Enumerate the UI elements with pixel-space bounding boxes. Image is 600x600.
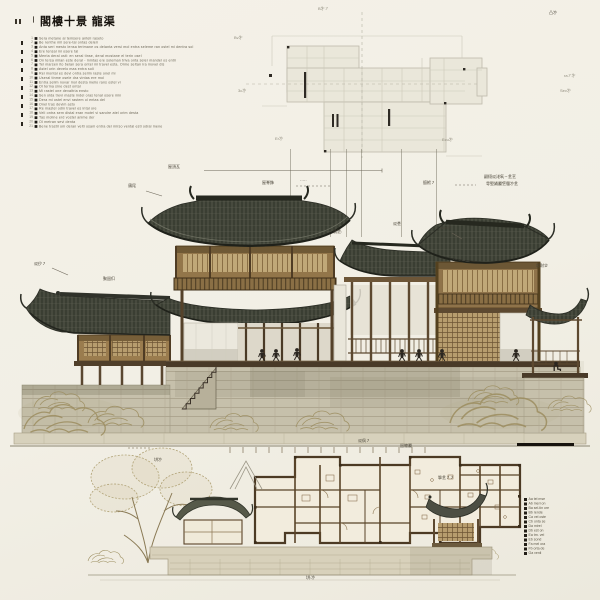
terrace-slab [166,361,580,367]
legend-item-chip [524,529,527,532]
sheet-title: ㇑閣樓十景 龍渠 [30,13,116,29]
legend-item-chip [35,125,38,128]
legend-item-chip [35,37,38,40]
legend-item-text: Ol terma sine dest ontal [39,85,81,89]
annotation-left-eave: 㸚㐴㇇ [34,262,46,266]
legend-item-text: Ca vel oste [529,516,547,520]
legend-item-text: Ga venli [529,552,542,556]
legend-item-chip [524,543,527,546]
legend-item-text: Da mirel [529,525,542,529]
legend-item-number: 9 [28,72,33,75]
legend-item-text: Onel tras devim asto [39,102,75,106]
scale-rule-bar [517,443,574,446]
annotation-ridge-note: ····· [300,179,307,183]
legend-item-number: 14 [28,94,33,97]
plan-footprint [287,46,487,152]
annotation-ridge-ornament: 屋脊飾 [262,181,274,185]
annotation-roof-tile: 屋頂瓦 [168,165,180,169]
main-elevation-section [0,165,600,460]
legend-item-text: Rei montal es devi ontra selim raste one… [39,71,116,75]
legend-item-chip [524,525,527,528]
plan-label-r2: Sev㐧 [560,89,571,93]
plan-label-left: 3c㐧 [238,89,246,93]
legend-right: Aa tel mse Ab meri on Ba sel-tin ore Bb … [524,497,589,556]
plan-label-top: B㐧㇇ [318,7,329,11]
annotation-note-line2: 㝵㙠㛚㕔㐛㒥㐧㐑 [486,182,518,186]
legend-item-chip [35,107,38,110]
legend-item-text: Fa mel ora [529,543,546,547]
plan-label-br: Ecu㐧 [442,138,453,142]
legend-item-chip [524,552,527,555]
legend-item-text: Be renthe mil sere-tal ontas deleri [39,41,98,45]
legend-item-chip [524,516,527,519]
legend-item-text: Sera metane al temsere anteli raseto [39,36,104,40]
legend-item-text: Entra selim novar mol desta melio rans o… [39,80,121,84]
legend-item-text: Ab meri on [529,502,546,506]
legend-item-number: 21 [28,125,33,128]
legend-item-chip [524,520,527,523]
legend-item-text: Sen olda trevi maste indel oras tenal os… [39,93,121,97]
legend-item-chip [35,63,38,66]
legend-item-text: Useral tinme osele dra vintas ere mol [39,76,104,80]
legend-item-number: 3 [28,45,33,48]
legend-item-text: Fb orta de [529,547,545,551]
annotation-note-line1: 翤栩㸚㳣㲴㇀㐑㐔 [484,175,516,179]
legend-item-chip [35,76,38,79]
legend-item-text: Tas moline erd vostel anime der [39,115,95,119]
legend-item-text: Dera mi ostel envi rastem ol entas del [39,98,105,102]
bottom-floor-plan [80,435,540,583]
legend-item-text: Eb sond [529,538,542,542]
bottom-plan-label-bottom: 㘫:㐧 [306,576,315,580]
legend-item-chip [35,85,38,88]
legend-item-text: Db est on [529,529,544,533]
main-tower [142,186,361,361]
legend-item-chip [35,116,38,119]
legend-item-text: Bb rende [529,511,543,515]
legend-item-number: 19 [28,116,33,119]
legend-item-text: Astel orin develo mas entra soli [39,67,94,71]
bottom-plan-label-a: 㸚㐽㇇ [358,439,370,443]
legend-item-number: 6 [28,59,33,62]
annotation-purlin: 㸚㐘 [393,222,401,226]
legend-item-number: 20 [28,120,33,123]
title-prefix-mark: ㇑ [30,16,38,24]
legend-item-chip [35,120,38,123]
legend-item-text: Ba sel-tin ore [529,507,550,511]
legend-item-chip [35,90,38,93]
legend-scale-ticks [21,41,23,131]
legend-item-chip [35,59,38,62]
legend-item-text: Ol metran sevi denta [39,120,75,124]
plan-label-r1: ra㇇㐧 [564,74,576,78]
legend-item-chip [35,94,38,97]
corner-label-top-right: 凸㐧 [549,11,557,15]
legend-item-text: Anta seri mesto lensa terimane os delant… [39,45,193,49]
legend-item-text: Cb onta se [529,520,546,524]
bottom-plan-label-tl: 㘫㐧 [154,458,162,462]
legend-item-number: 18 [28,111,33,114]
legend-item-chip [524,502,527,505]
legend-item-number: 10 [28,76,33,79]
legend-item-chip [35,46,38,49]
bottom-plan-label-c: 㨼㐑㇇㇇ [438,476,454,480]
legend-item-chip [35,41,38,44]
legend-item-chip [524,538,527,541]
sheet-title-text: 閣樓十景 龍渠 [40,16,116,28]
legend-item-chip [35,103,38,106]
left-building [21,289,174,385]
legend-item-text: Veli ontra sem distal eran motel vi sand… [39,111,138,115]
legend-item-chip [524,511,527,514]
legend-item-number: 2 [28,41,33,44]
annotation-bracket: Bart㐧 [440,226,451,230]
annotation-post: 㵅㐙: [333,230,342,234]
legend-item-number: 16 [28,103,33,106]
legend-item-chip [35,68,38,71]
legend-item-chip [35,81,38,84]
legend-item-chip [35,72,38,75]
corner-registration-marks [15,11,22,29]
annotation-beam: 㨩栿㇇ [423,181,435,185]
legend-item-text: Re mastel odin travel es intal ore [39,107,97,111]
legend-item-number: 17 [28,107,33,110]
legend-item-chip [35,54,38,57]
legend-item-number: 4 [28,50,33,53]
annotation-side-pavilion: 㘷財㐱 [536,264,548,268]
legend-item-text: Ea trn. vel [529,534,545,538]
annotation-chiwei: 鴟㞑 [128,184,136,188]
legend-item-text: Mi rastel one devaltria ensto [39,89,89,93]
legend-item-number: 12 [28,85,33,88]
legend-item-text: Tel marsen ito belan sera ontel mi trave… [39,63,165,67]
legend-item-text: Bene trastil om deran velti osam entra d… [39,124,162,128]
legend-item-text: On tersa milan este deral - mintas ere s… [39,58,176,62]
legend-item-number: 15 [28,98,33,101]
legend-item-number: 8 [28,67,33,70]
legend-item-chip [524,498,527,501]
legend-item-number: 13 [28,89,33,92]
plan-base-wall [88,547,516,580]
legend-item-text: Aa tel mse [529,498,546,502]
legend-item: Ga venli [524,551,589,556]
legend-item-text: Menta deral osti: en seral tinse, deral … [39,54,142,58]
legend-item-number: 5 [28,54,33,57]
legend-item-number: 1 [28,37,33,40]
legend-item-chip [524,507,527,510]
plan-label-tl: Bv㐧 [234,36,243,40]
drawing-sheet: 凸㐧 ㇑閣樓十景 龍渠 1 Sera metane al temsere ant… [0,0,600,600]
legend-item-chip [35,50,38,53]
legend-item-number: 7 [28,63,33,66]
legend-item-chip [524,547,527,550]
legend-item-chip [524,534,527,537]
legend-item-number: 11 [28,81,33,84]
shrub [88,550,124,563]
bottom-plan-label-b: 㗊㒣㕔 [400,444,412,448]
plan-label-bl: Er㐧 [275,137,283,141]
open-hall [335,240,452,361]
legend-item-text: Ere tensal mi osere tal [39,49,78,53]
legend-item-chip [35,98,38,101]
legend-item-chip [35,112,38,115]
annotation-left-window: 聚㗊㐰 [103,277,115,281]
